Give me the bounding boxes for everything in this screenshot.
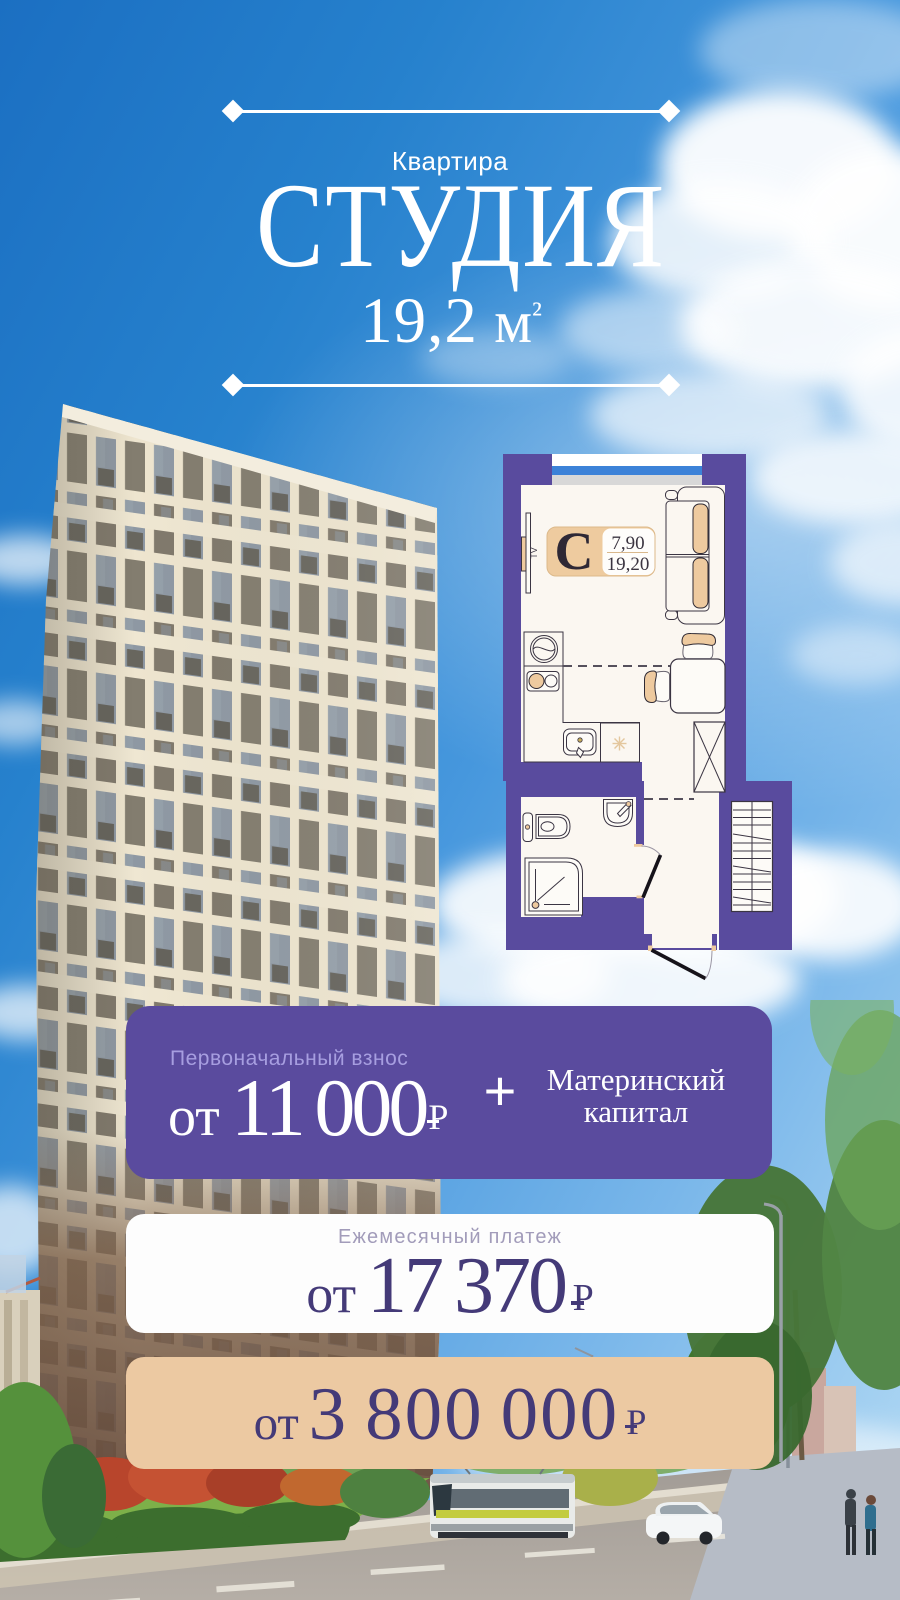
svg-text:19,20: 19,20 — [607, 554, 650, 575]
svg-text:С: С — [555, 521, 594, 581]
svg-text:TV: TV — [529, 547, 539, 559]
svg-text:7,90: 7,90 — [611, 533, 644, 554]
